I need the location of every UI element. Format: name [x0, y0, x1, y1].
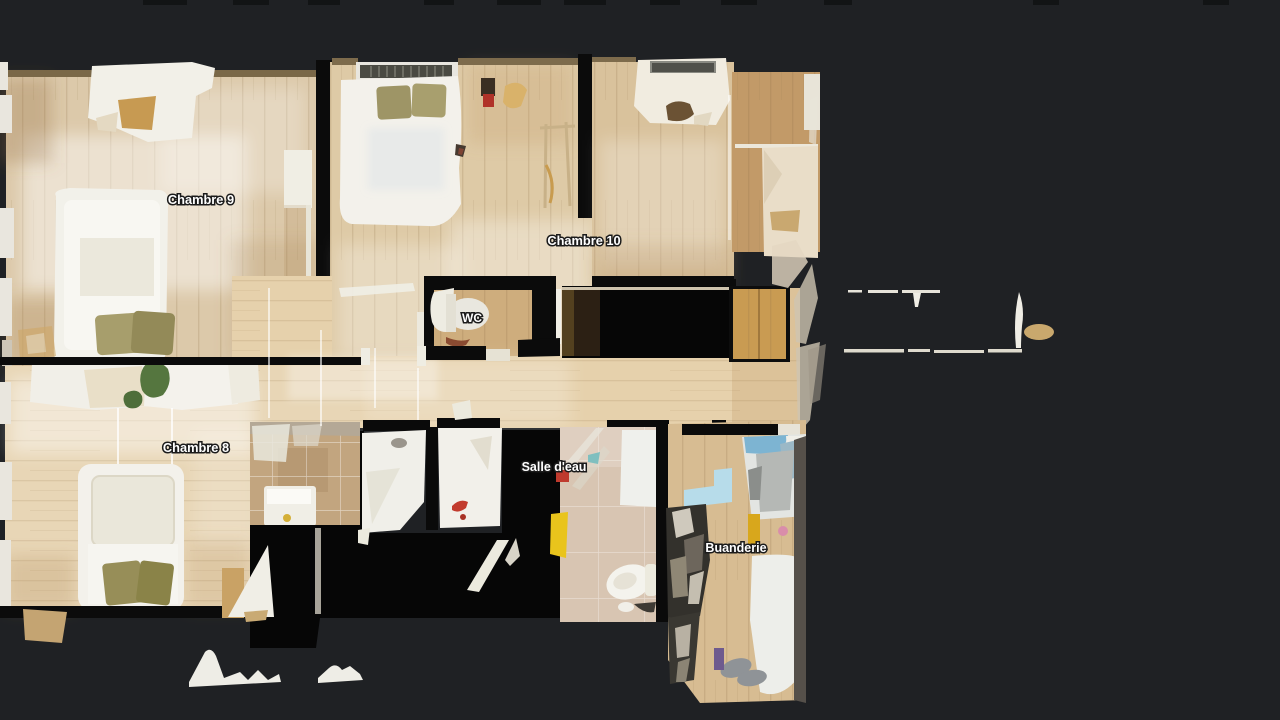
- svg-text:Chambre 8: Chambre 8: [163, 440, 229, 455]
- svg-text:WC: WC: [462, 311, 482, 325]
- svg-text:Buanderie: Buanderie: [705, 541, 766, 555]
- svg-text:Salle d'eau: Salle d'eau: [522, 460, 587, 474]
- svg-text:Chambre 10: Chambre 10: [547, 233, 620, 248]
- svg-text:Chambre 9: Chambre 9: [168, 192, 234, 207]
